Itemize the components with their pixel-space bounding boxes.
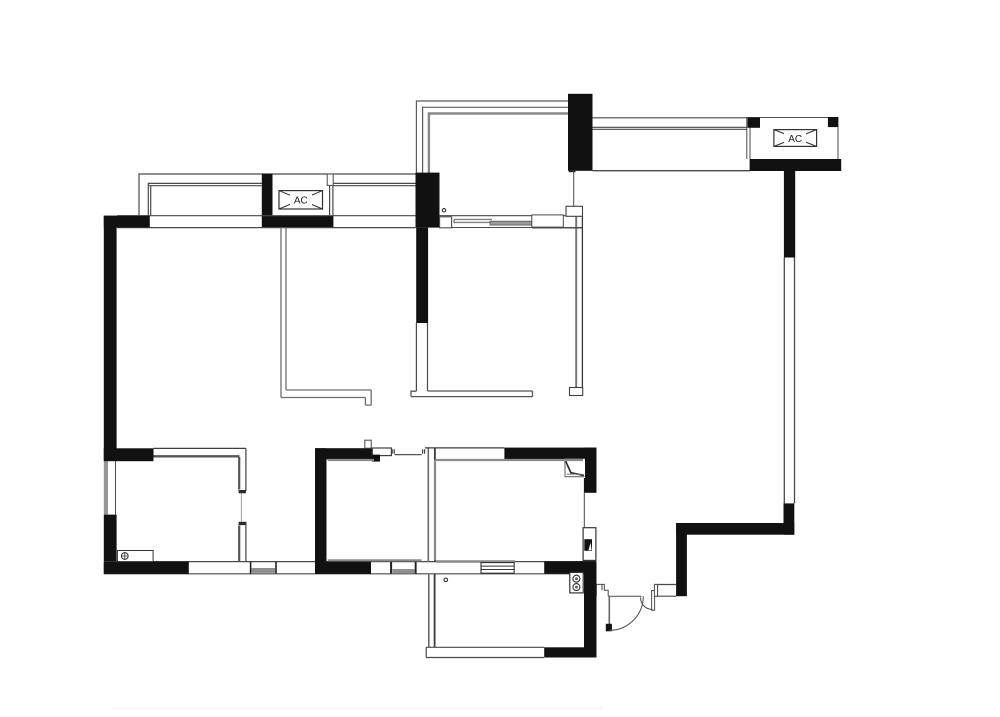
svg-text:AC: AC [788, 134, 802, 145]
svg-text:AC: AC [294, 196, 308, 207]
